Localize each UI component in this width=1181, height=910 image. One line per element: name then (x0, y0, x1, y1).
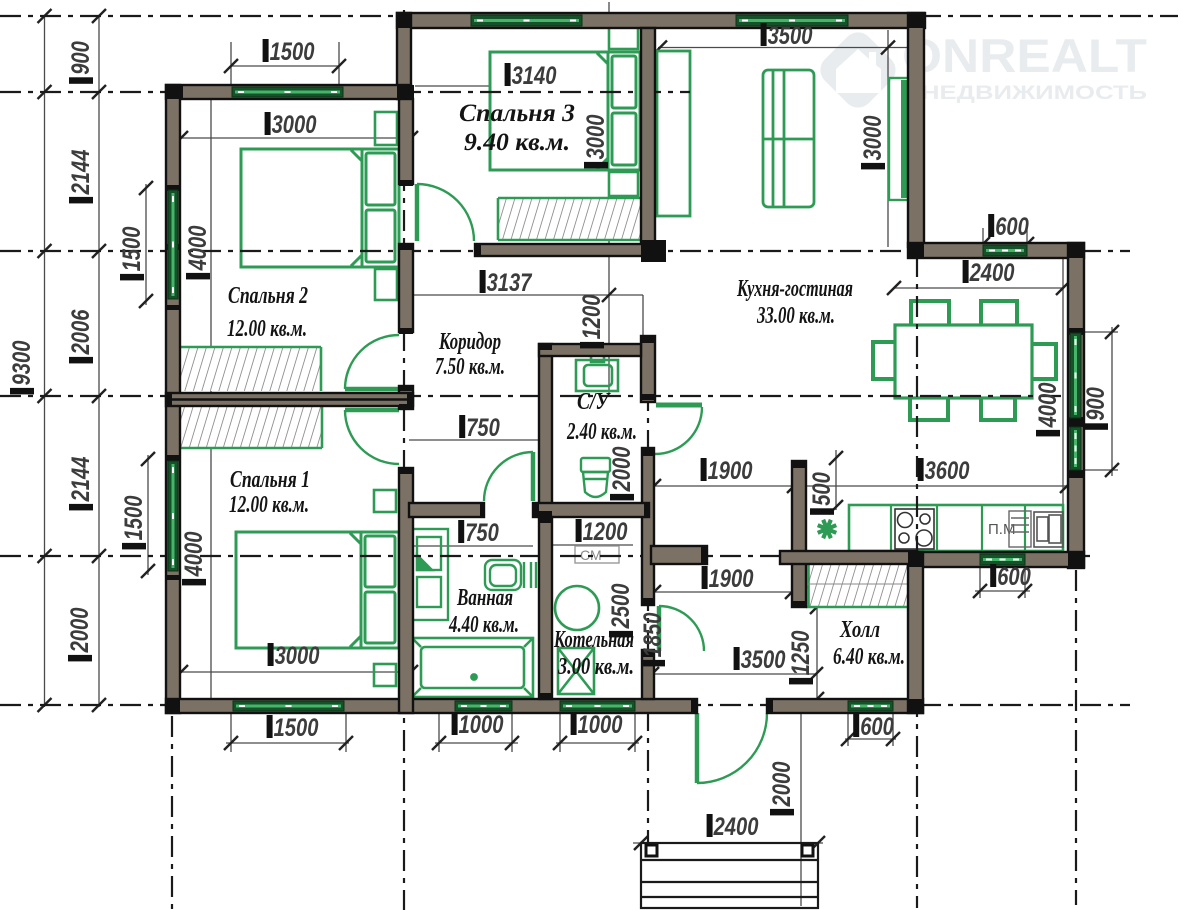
svg-text:Спальня 1: Спальня 1 (230, 467, 310, 493)
svg-text:2000: 2000 (608, 447, 636, 493)
svg-text:1000: 1000 (578, 711, 623, 739)
svg-text:9.40 кв.м.: 9.40 кв.м. (464, 129, 570, 156)
svg-text:1900: 1900 (709, 565, 754, 593)
svg-text:1500: 1500 (118, 227, 146, 272)
svg-text:1200: 1200 (578, 295, 606, 340)
svg-text:2144: 2144 (67, 457, 95, 503)
svg-text:3000: 3000 (582, 115, 610, 160)
svg-text:2144: 2144 (67, 150, 95, 196)
svg-text:Спальня 3: Спальня 3 (459, 100, 575, 127)
svg-text:Ванная: Ванная (456, 585, 513, 611)
svg-text:3140: 3140 (512, 62, 557, 90)
svg-text:2006: 2006 (67, 309, 95, 355)
svg-text:2.40 кв.м.: 2.40 кв.м. (566, 419, 637, 445)
svg-text:1000: 1000 (459, 711, 504, 739)
svg-text:Коридор: Коридор (438, 329, 501, 355)
svg-text:1500: 1500 (120, 496, 148, 541)
svg-text:НЕДВИЖИМОСТЬ: НЕДВИЖИМОСТЬ (921, 83, 1147, 104)
svg-text:600: 600 (860, 713, 894, 741)
svg-text:Холл: Холл (839, 617, 880, 643)
svg-text:4000: 4000 (180, 532, 208, 578)
svg-text:900: 900 (1082, 387, 1110, 421)
svg-text:3137: 3137 (487, 269, 533, 297)
svg-text:4.40 кв.м.: 4.40 кв.м. (448, 612, 519, 638)
svg-text:4000: 4000 (184, 226, 212, 272)
svg-text:ONREALT: ONREALT (902, 29, 1147, 82)
svg-text:7.50 кв.м.: 7.50 кв.м. (435, 354, 505, 380)
svg-text:500: 500 (808, 472, 836, 506)
svg-text:4000: 4000 (1034, 383, 1062, 429)
svg-text:33.00 кв.м.: 33.00 кв.м. (756, 303, 835, 329)
svg-text:3500: 3500 (741, 646, 786, 674)
svg-text:3000: 3000 (272, 111, 317, 139)
svg-text:750: 750 (466, 414, 500, 442)
svg-text:2400: 2400 (969, 259, 1015, 287)
svg-text:1900: 1900 (708, 457, 753, 485)
svg-text:3000: 3000 (859, 116, 887, 161)
svg-text:2000: 2000 (768, 762, 796, 808)
svg-text:9300: 9300 (8, 341, 36, 386)
svg-text:3.00 кв.м.: 3.00 кв.м. (557, 654, 634, 680)
svg-text:3500: 3500 (768, 22, 813, 50)
svg-text:Кухня-гостиная: Кухня-гостиная (736, 276, 853, 302)
svg-text:С/У: С/У (577, 389, 611, 415)
svg-text:3600: 3600 (925, 457, 970, 485)
svg-text:600: 600 (997, 563, 1031, 591)
svg-text:1850: 1850 (639, 613, 667, 658)
svg-text:1500: 1500 (274, 714, 319, 742)
svg-text:2500: 2500 (607, 584, 635, 630)
svg-text:6.40 кв.м.: 6.40 кв.м. (833, 644, 905, 670)
svg-text:1200: 1200 (583, 518, 628, 546)
svg-text:1500: 1500 (270, 38, 315, 66)
svg-text:12.00 кв.м.: 12.00 кв.м. (229, 492, 309, 518)
svg-text:12.00 кв.м.: 12.00 кв.м. (227, 316, 307, 342)
svg-text:1250: 1250 (787, 631, 815, 676)
svg-text:900: 900 (67, 41, 95, 75)
svg-text:3000: 3000 (275, 642, 320, 670)
svg-text:2400: 2400 (713, 813, 759, 841)
svg-text:П.М: П.М (988, 521, 1015, 538)
svg-text:Спальня 2: Спальня 2 (228, 283, 308, 309)
svg-text:2000: 2000 (66, 608, 94, 654)
svg-text:600: 600 (995, 213, 1029, 241)
svg-text:750: 750 (465, 519, 499, 547)
